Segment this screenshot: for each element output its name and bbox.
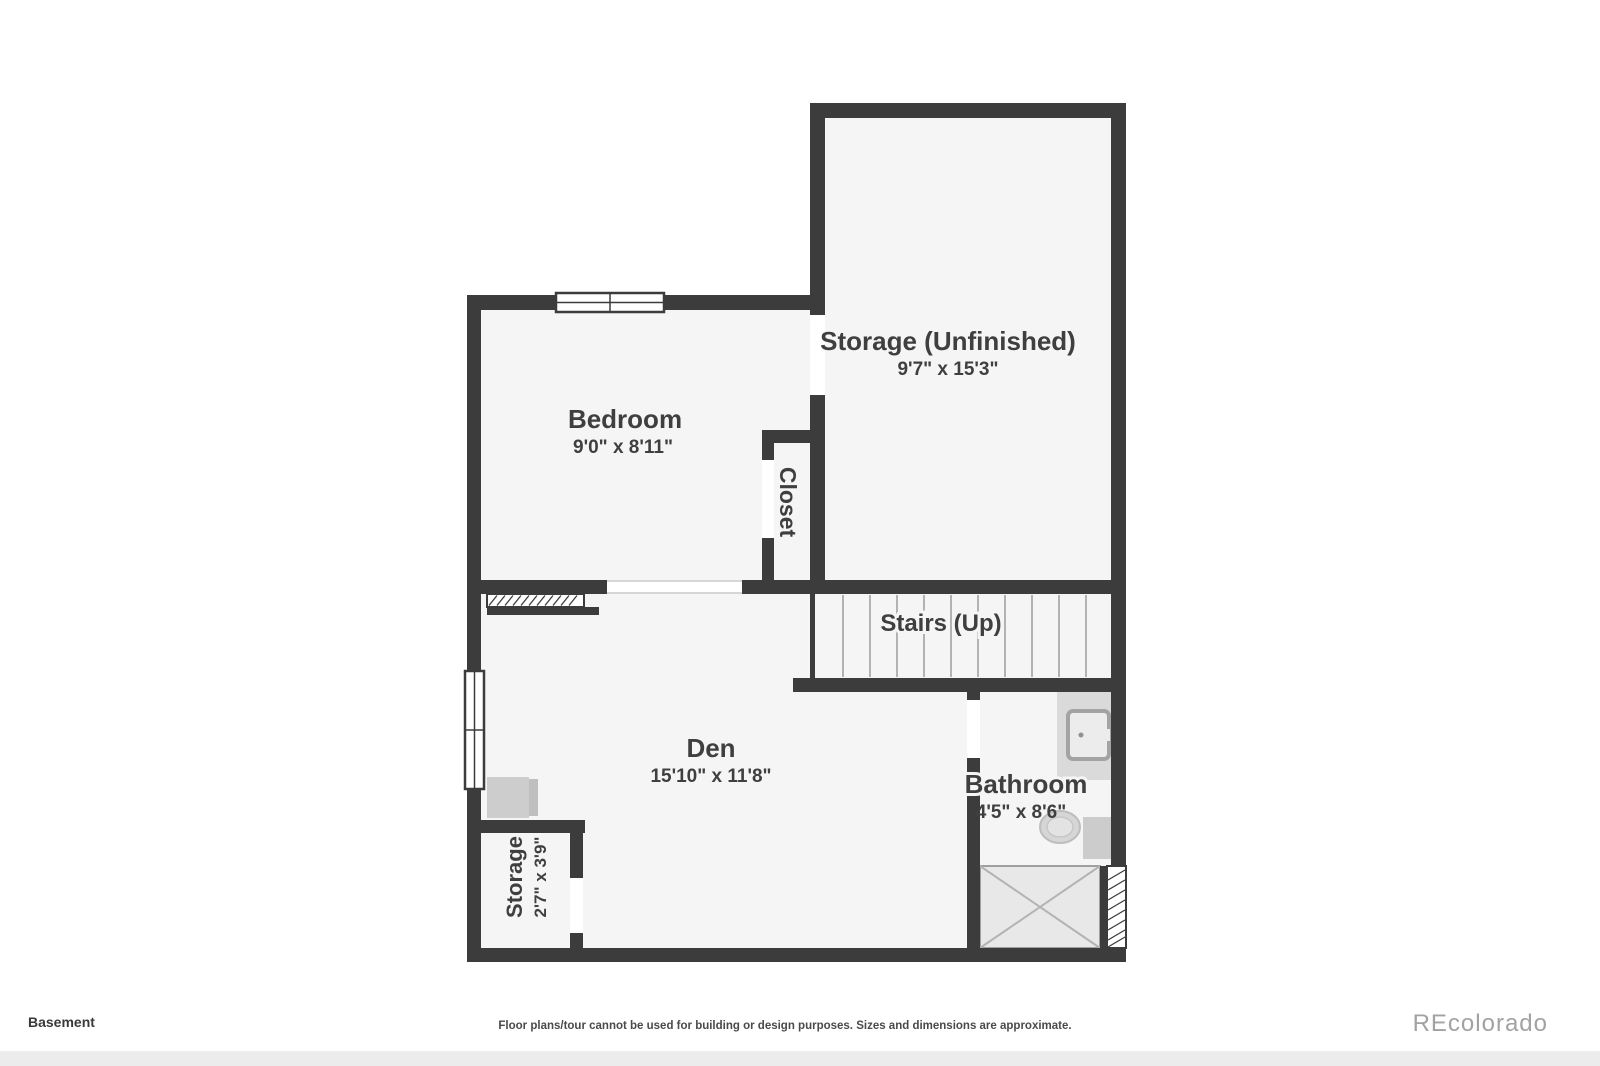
bathroom-door-opening (967, 700, 980, 758)
storage-left-wall-upper (810, 103, 825, 315)
sink-icon (1057, 692, 1111, 780)
closet-label: Closet (775, 467, 801, 538)
bottom-strip (0, 1051, 1600, 1066)
storage-left-wall-lower (810, 395, 825, 594)
stairs-bottom-wall (793, 678, 1126, 692)
storage-unfinished-dims: 9'7" x 15'3" (897, 359, 998, 380)
ledge-bottom-bar (487, 607, 599, 615)
closet-door-opening (762, 460, 774, 538)
chair-icon (487, 777, 538, 818)
hatched-ledge (487, 594, 584, 607)
stairs-left-wall (810, 594, 815, 678)
right-outer-wall (1111, 103, 1126, 866)
bedroom-window-icon (556, 293, 664, 312)
mid-horizontal-wall (467, 580, 1126, 594)
shower-icon (980, 866, 1106, 948)
storage-unfinished-label: Storage (Unfinished) (820, 326, 1076, 356)
bedroom-den-opening (607, 580, 742, 594)
bottom-outer-wall (467, 948, 1126, 962)
den-dims: 15'10" x 11'8" (650, 766, 771, 787)
bedroom-dims: 9'0" x 8'11" (573, 437, 673, 458)
floorplan-page: Storage (Unfinished) 9'7" x 15'3" Bedroo… (0, 0, 1600, 1066)
hatched-wall-strip (1107, 866, 1126, 948)
small-storage-door-opening (570, 878, 583, 933)
bathroom-label: Bathroom (965, 769, 1088, 799)
small-storage-dims: 2'7" x 3'9" (531, 837, 550, 918)
den-window-icon (465, 671, 484, 789)
disclaimer-text: Floor plans/tour cannot be used for buil… (0, 1020, 1570, 1032)
bedroom-label: Bedroom (568, 404, 682, 434)
stairs-label: Stairs (Up) (880, 610, 1001, 637)
storage-top-wall (810, 103, 1126, 118)
small-storage-top-wall (467, 820, 585, 833)
den-label: Den (686, 733, 735, 763)
left-outer-wall (467, 295, 481, 962)
small-storage-label: Storage (502, 836, 527, 918)
recolorado-watermark: REcolorado (1413, 1010, 1548, 1038)
bathroom-dims: 4'5" x 8'6" (976, 802, 1066, 823)
floorplan-drawing: Storage (Unfinished) 9'7" x 15'3" Bedroo… (0, 0, 1600, 1066)
